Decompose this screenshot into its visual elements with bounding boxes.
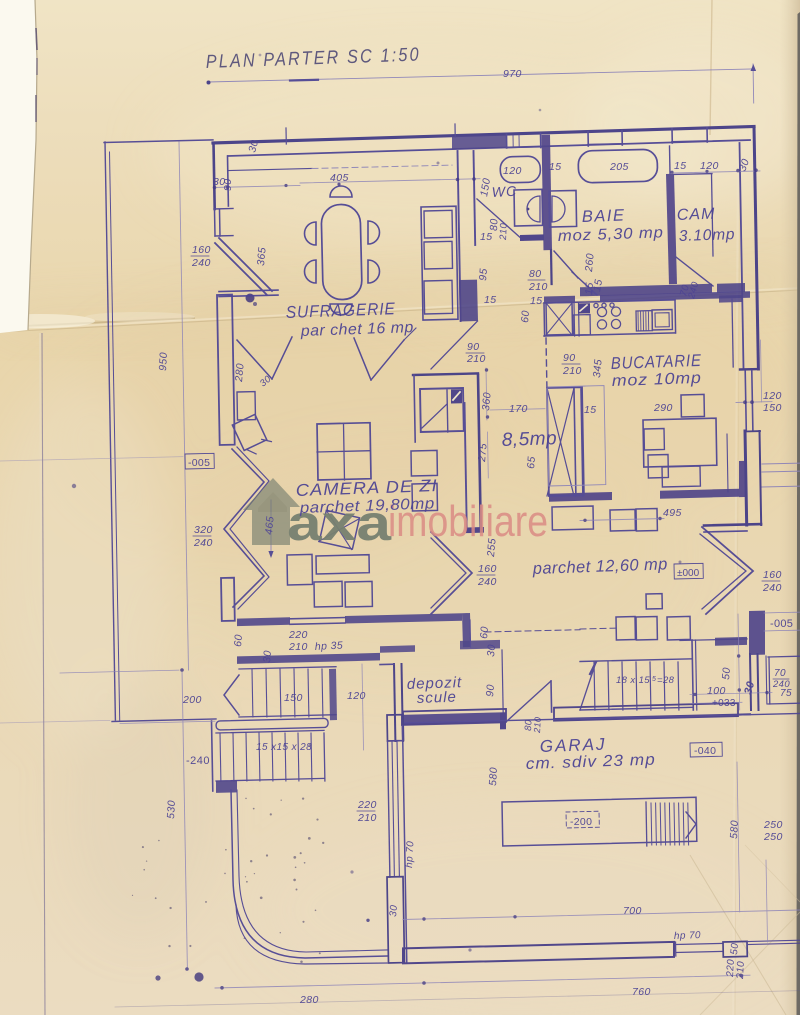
- svg-text:210: 210: [735, 961, 747, 980]
- svg-text:hp 70: hp 70: [674, 930, 701, 942]
- svg-text:15: 15: [549, 161, 561, 173]
- svg-text:210: 210: [528, 281, 548, 293]
- svg-text:240: 240: [762, 582, 782, 594]
- svg-text:-005: -005: [770, 618, 793, 630]
- svg-text:WC: WC: [491, 183, 517, 200]
- svg-text:365: 365: [255, 247, 269, 267]
- svg-text:-040: -040: [694, 745, 716, 757]
- svg-text:210: 210: [288, 641, 308, 653]
- svg-text:260: 260: [583, 253, 597, 274]
- svg-text:-200: -200: [570, 816, 592, 828]
- svg-text:65: 65: [525, 456, 538, 469]
- svg-text:240: 240: [191, 257, 211, 269]
- svg-text:3.10mp: 3.10mp: [679, 226, 736, 245]
- svg-text:495: 495: [663, 507, 682, 519]
- svg-text:5: 5: [652, 676, 656, 683]
- svg-text:70: 70: [774, 668, 786, 679]
- svg-text:=28: =28: [657, 675, 675, 686]
- svg-text:220: 220: [357, 799, 377, 811]
- svg-text:150: 150: [763, 402, 782, 414]
- svg-text:465: 465: [263, 516, 277, 536]
- svg-text:700: 700: [623, 905, 642, 917]
- svg-text:18 x 15: 18 x 15: [616, 675, 650, 686]
- svg-text:-005: -005: [188, 457, 210, 469]
- svg-text:scule: scule: [417, 689, 458, 707]
- svg-text:280: 280: [233, 363, 247, 384]
- svg-text:50: 50: [729, 942, 741, 955]
- svg-text:320: 320: [194, 524, 213, 536]
- svg-text:950: 950: [157, 352, 170, 371]
- svg-text:970: 970: [503, 68, 522, 80]
- svg-text:275: 275: [476, 443, 490, 464]
- svg-text:160: 160: [192, 244, 211, 256]
- svg-text:15: 15: [584, 404, 596, 416]
- svg-text:BAIE: BAIE: [582, 206, 626, 226]
- svg-text:290: 290: [653, 402, 673, 414]
- svg-text:15: 15: [591, 278, 605, 292]
- svg-text:240: 240: [193, 537, 213, 549]
- svg-text:120: 120: [347, 690, 366, 702]
- svg-text:150: 150: [284, 692, 303, 704]
- svg-text:15: 15: [480, 231, 492, 243]
- svg-text:255: 255: [485, 538, 499, 559]
- svg-text:205: 205: [609, 161, 629, 173]
- svg-text:90: 90: [484, 684, 497, 697]
- svg-text:hp 35: hp 35: [315, 640, 344, 653]
- svg-text:170: 170: [509, 403, 528, 415]
- svg-text:210: 210: [466, 353, 486, 365]
- svg-text:CAM: CAM: [677, 206, 716, 224]
- svg-text:30: 30: [388, 904, 400, 917]
- svg-text:hp 70: hp 70: [404, 841, 416, 869]
- svg-text:90: 90: [563, 352, 575, 364]
- svg-text:580: 580: [487, 767, 500, 786]
- svg-text:50: 50: [720, 667, 733, 680]
- svg-text:30: 30: [485, 644, 498, 657]
- svg-text:120: 120: [503, 165, 522, 177]
- svg-text:SUFRAGERIE: SUFRAGERIE: [285, 299, 396, 322]
- svg-text:±000: ±000: [677, 568, 700, 579]
- svg-text:15: 15: [674, 160, 686, 172]
- svg-text:60: 60: [519, 310, 532, 323]
- svg-text:160: 160: [763, 569, 782, 581]
- svg-text:15: 15: [484, 294, 496, 306]
- svg-text:210: 210: [498, 222, 510, 241]
- svg-text:90: 90: [222, 179, 234, 191]
- svg-text:200: 200: [182, 694, 202, 706]
- svg-text:100: 100: [707, 685, 726, 697]
- svg-text:60: 60: [478, 626, 491, 639]
- svg-text:80: 80: [529, 268, 541, 280]
- svg-text:90: 90: [467, 341, 479, 353]
- svg-text:250: 250: [763, 831, 783, 843]
- svg-text:30: 30: [261, 650, 274, 663]
- svg-text:345: 345: [591, 359, 605, 379]
- svg-text:210: 210: [357, 812, 377, 824]
- svg-text:220: 220: [288, 629, 308, 641]
- svg-text:250: 250: [763, 819, 783, 831]
- svg-text:15 x15 x 28: 15 x15 x 28: [256, 742, 312, 753]
- svg-text:75: 75: [780, 688, 792, 699]
- svg-text:405: 405: [330, 172, 349, 184]
- svg-text:210: 210: [562, 365, 582, 377]
- svg-text:120: 120: [700, 160, 719, 172]
- svg-text:95: 95: [477, 268, 490, 281]
- svg-text:280: 280: [299, 994, 319, 1006]
- svg-text:8,5mp: 8,5mp: [501, 428, 557, 451]
- svg-text:240: 240: [477, 576, 497, 588]
- svg-text:360: 360: [480, 392, 494, 412]
- svg-text:60: 60: [232, 634, 245, 647]
- svg-text:760: 760: [632, 986, 651, 998]
- svg-text:+033: +033: [712, 698, 736, 709]
- svg-text:210: 210: [532, 716, 543, 734]
- svg-text:530: 530: [165, 800, 178, 819]
- svg-text:-240: -240: [186, 755, 210, 767]
- svg-text:120: 120: [763, 390, 782, 402]
- svg-text:580: 580: [728, 820, 741, 839]
- svg-text:160: 160: [478, 563, 497, 575]
- svg-text:moz 10mp: moz 10mp: [612, 370, 703, 390]
- svg-text:15: 15: [530, 295, 542, 307]
